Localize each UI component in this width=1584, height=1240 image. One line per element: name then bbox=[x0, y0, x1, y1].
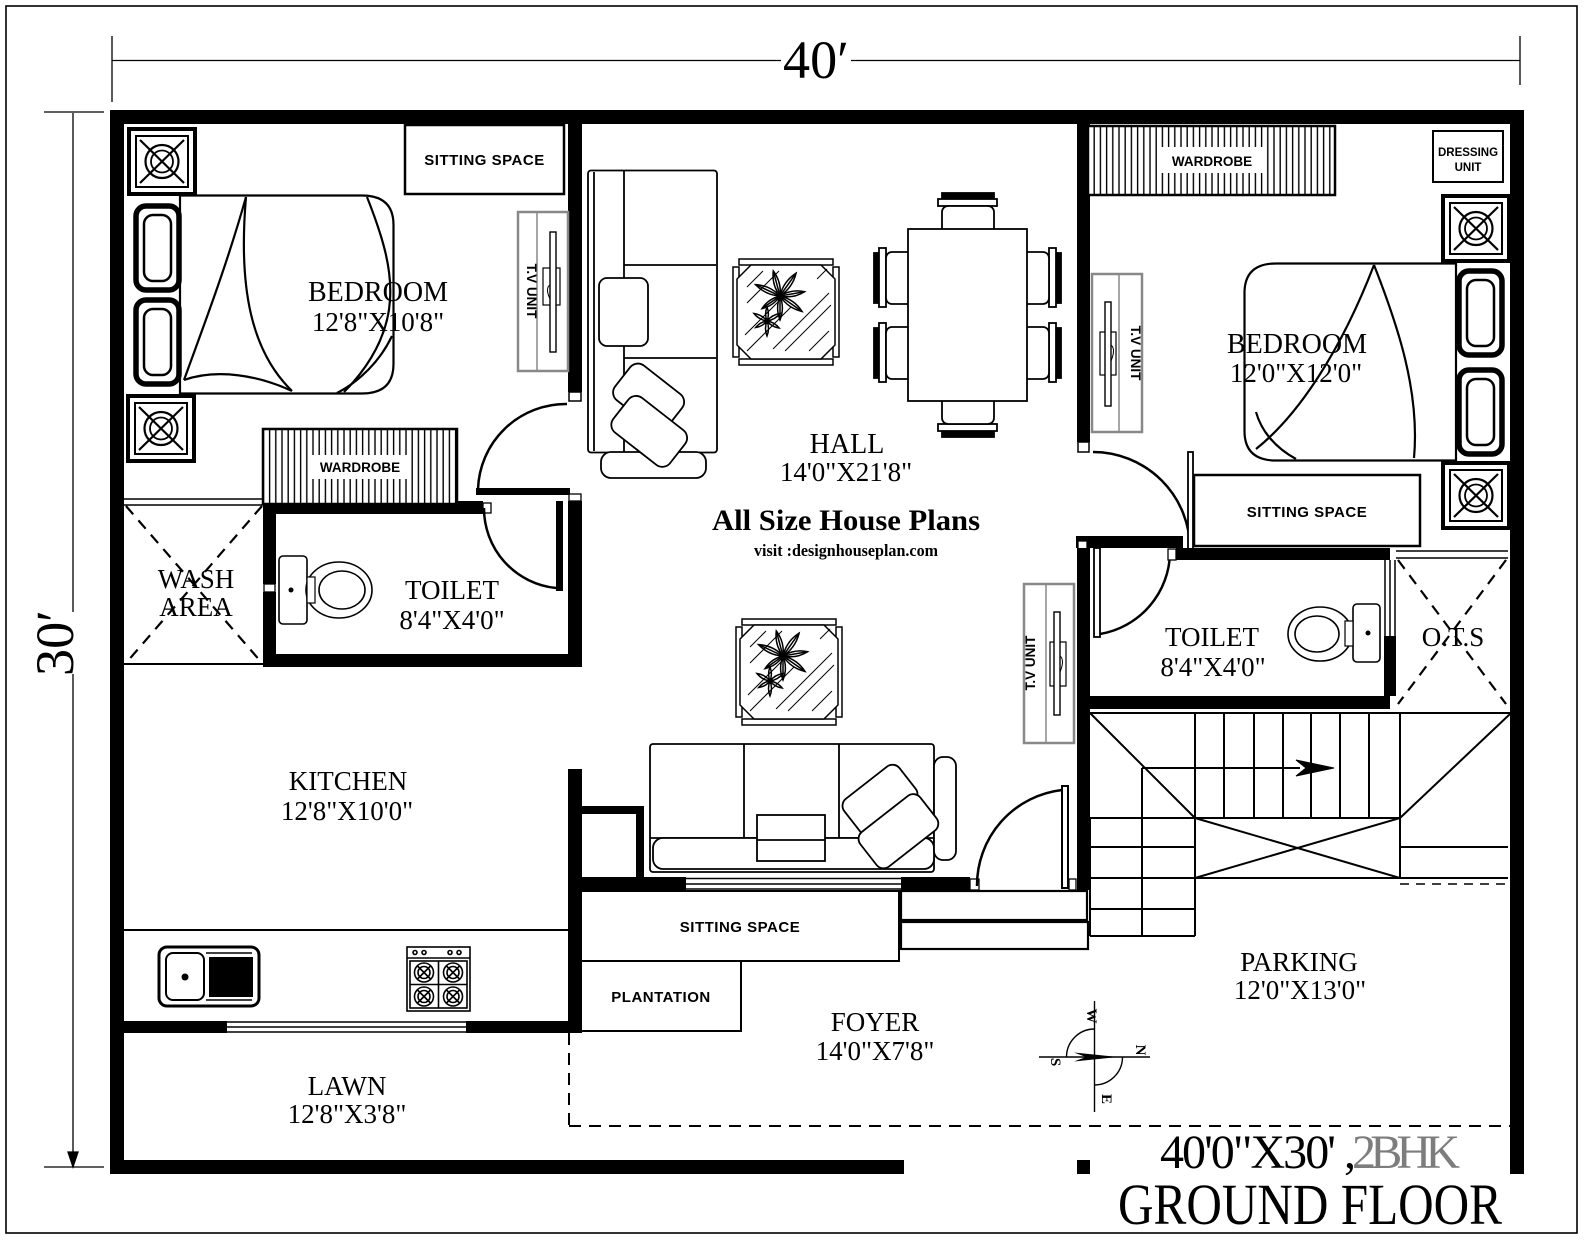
svg-text:W: W bbox=[1083, 1009, 1099, 1024]
svg-text:WARDROBE: WARDROBE bbox=[320, 460, 400, 475]
svg-text:12'0"X12'0": 12'0"X12'0" bbox=[1230, 358, 1362, 388]
svg-text:SITTING SPACE: SITTING SPACE bbox=[1247, 504, 1367, 521]
svg-text:14'0"X7'8": 14'0"X7'8" bbox=[816, 1036, 935, 1066]
svg-text:12'0"X13'0": 12'0"X13'0" bbox=[1234, 975, 1366, 1005]
svg-text:TOILET: TOILET bbox=[1165, 622, 1259, 652]
svg-text:HALL: HALL bbox=[810, 429, 885, 460]
svg-text:8'4"X4'0": 8'4"X4'0" bbox=[1160, 652, 1265, 682]
svg-text:E: E bbox=[1098, 1094, 1114, 1104]
svg-text:visit :designhouseplan.com: visit :designhouseplan.com bbox=[754, 541, 938, 560]
svg-text:BEDROOM: BEDROOM bbox=[1227, 329, 1367, 360]
svg-text:12'8"X10'8": 12'8"X10'8" bbox=[312, 307, 444, 337]
svg-text:SITTING SPACE: SITTING SPACE bbox=[680, 919, 800, 936]
svg-text:BEDROOM: BEDROOM bbox=[308, 277, 448, 308]
svg-text:T.V UNIT: T.V UNIT bbox=[1023, 635, 1038, 691]
svg-text:14'0"X21'8": 14'0"X21'8" bbox=[780, 457, 912, 487]
svg-text:PARKING: PARKING bbox=[1240, 947, 1358, 977]
svg-text:TOILET: TOILET bbox=[405, 575, 499, 605]
svg-text:DRESSING: DRESSING bbox=[1438, 147, 1498, 159]
svg-text:8'4"X4'0": 8'4"X4'0" bbox=[399, 605, 504, 635]
svg-text:All Size House Plans: All Size House Plans bbox=[712, 504, 980, 537]
svg-text:12'8"X10'0": 12'8"X10'0" bbox=[281, 796, 413, 826]
svg-text:40′: 40′ bbox=[783, 30, 849, 90]
svg-text:UNIT: UNIT bbox=[1455, 162, 1482, 174]
svg-text:AREA: AREA bbox=[159, 592, 233, 622]
svg-text:WASH: WASH bbox=[158, 564, 235, 594]
svg-text:N: N bbox=[1132, 1045, 1148, 1056]
svg-text:30′: 30′ bbox=[25, 610, 85, 676]
svg-text:T.V UNIT: T.V UNIT bbox=[524, 264, 539, 320]
svg-text:FOYER: FOYER bbox=[831, 1007, 920, 1037]
svg-text:WARDROBE: WARDROBE bbox=[1172, 154, 1252, 169]
svg-text:SITTING SPACE: SITTING SPACE bbox=[424, 152, 544, 169]
svg-text:KITCHEN: KITCHEN bbox=[289, 766, 407, 796]
svg-text:12'8"X3'8": 12'8"X3'8" bbox=[288, 1099, 407, 1129]
svg-text:GROUND FLOOR: GROUND FLOOR bbox=[1118, 1172, 1502, 1237]
svg-text:LAWN: LAWN bbox=[308, 1071, 387, 1101]
svg-text:PLANTATION: PLANTATION bbox=[611, 989, 710, 1006]
svg-text:O.T.S: O.T.S bbox=[1422, 622, 1485, 652]
svg-text:S: S bbox=[1047, 1058, 1063, 1066]
svg-text:T.V UNIT: T.V UNIT bbox=[1128, 326, 1143, 382]
